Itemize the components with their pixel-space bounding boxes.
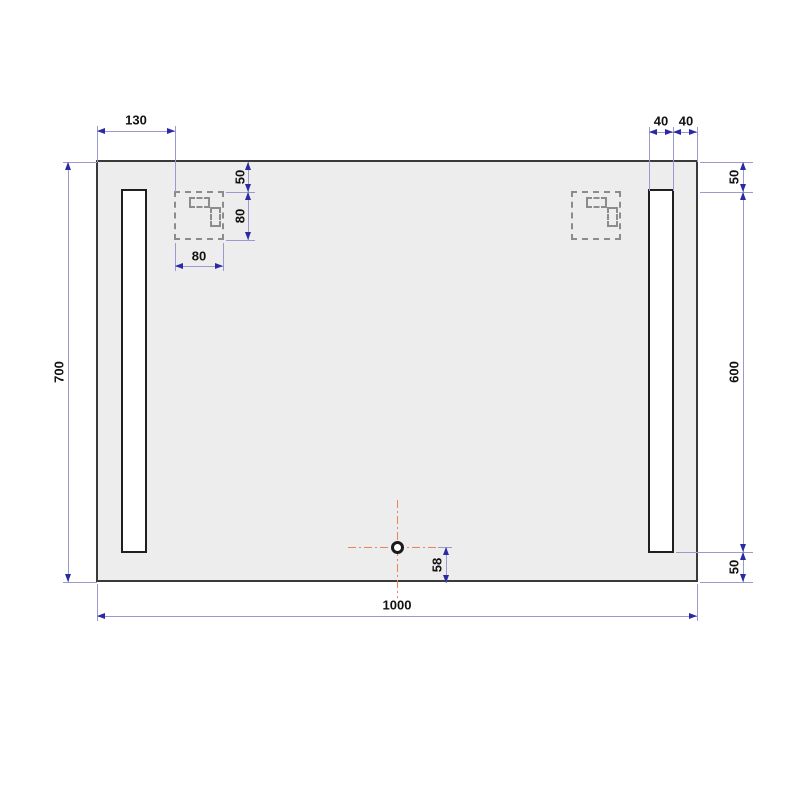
mounting-bracket-right <box>571 191 621 240</box>
dimension-line-700 <box>68 162 69 582</box>
sensor-hole <box>391 541 404 554</box>
drawing-canvas: 130 40 40 700 1000 50 600 50 50 80 <box>0 0 800 800</box>
extension-line <box>226 240 255 241</box>
dim-arrow <box>740 544 746 552</box>
extension-line <box>700 582 753 583</box>
dim-arrow <box>245 184 251 192</box>
dim-label-600: 600 <box>728 361 741 383</box>
dim-arrow <box>245 192 251 200</box>
dim-label-80-width: 80 <box>192 250 206 263</box>
dim-arrow <box>167 128 175 134</box>
extension-line <box>673 127 674 191</box>
dim-arrow <box>245 232 251 240</box>
mounting-bracket-left <box>174 191 224 240</box>
dimension-line-1000 <box>97 616 697 617</box>
dim-label-40-gap: 40 <box>679 115 693 128</box>
dimension-line-130 <box>97 131 175 132</box>
dim-label-700: 700 <box>53 361 66 383</box>
dim-label-50-top: 50 <box>728 170 741 184</box>
dim-arrow <box>740 162 746 170</box>
dim-label-1000: 1000 <box>383 599 412 612</box>
dim-arrow <box>215 263 223 269</box>
dim-arrow <box>97 613 105 619</box>
dim-arrow <box>443 547 449 555</box>
led-strip-right <box>648 189 674 553</box>
dim-arrow <box>65 162 71 170</box>
extension-line <box>697 127 698 162</box>
dim-arrow <box>740 552 746 560</box>
bracket-slot <box>586 197 607 208</box>
led-strip-left <box>121 189 147 553</box>
dim-arrow <box>65 574 71 582</box>
dim-label-50-bottom: 50 <box>728 560 741 574</box>
bracket-slot <box>607 207 618 227</box>
dim-arrow <box>740 192 746 200</box>
dim-label-40-strip: 40 <box>654 115 668 128</box>
extension-line <box>649 127 650 191</box>
extension-line <box>175 126 176 192</box>
dim-arrow <box>740 184 746 192</box>
dim-arrow <box>97 128 105 134</box>
dim-label-50-bracket: 50 <box>234 170 247 184</box>
bracket-slot <box>189 197 210 208</box>
extension-line <box>697 584 698 621</box>
dim-arrow <box>689 613 697 619</box>
dim-arrow <box>649 129 657 135</box>
extension-line <box>63 582 97 583</box>
dim-arrow <box>665 129 673 135</box>
bracket-slot <box>210 207 221 227</box>
dim-arrow <box>673 129 681 135</box>
dimension-line-bracket-vertical <box>248 162 249 240</box>
dim-label-80-height: 80 <box>234 209 247 223</box>
dim-arrow <box>740 574 746 582</box>
extension-line <box>223 243 224 271</box>
dim-arrow <box>175 263 183 269</box>
dimension-line-right-stack <box>743 162 744 582</box>
dim-label-130: 130 <box>125 114 147 127</box>
dim-arrow <box>443 575 449 583</box>
dim-label-58: 58 <box>431 558 444 572</box>
dim-arrow <box>689 129 697 135</box>
